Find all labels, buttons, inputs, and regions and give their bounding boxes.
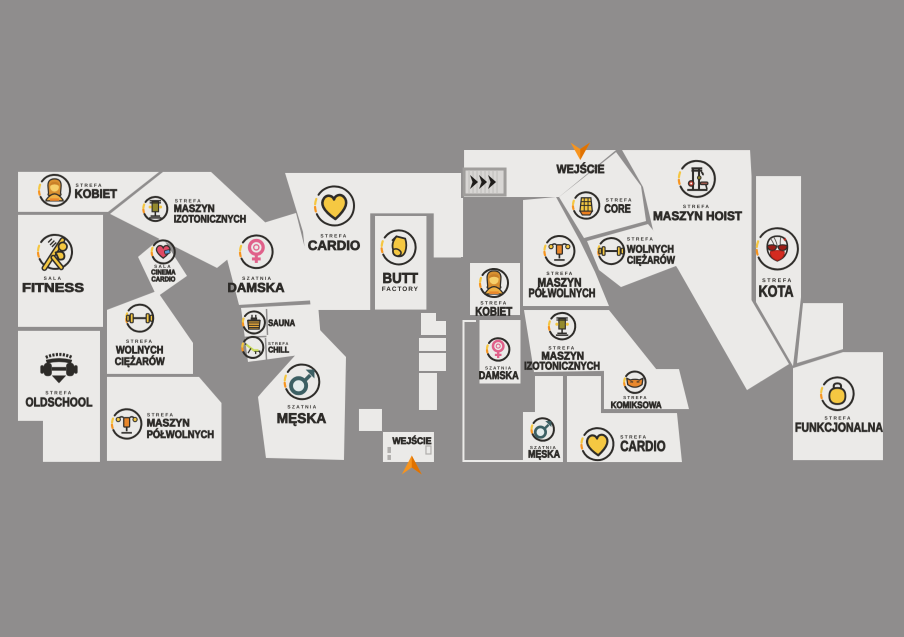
svg-text:FUNKCJONALNA: FUNKCJONALNA	[795, 420, 883, 435]
svg-text:KOTA: KOTA	[759, 284, 794, 301]
svg-text:CARDIO: CARDIO	[151, 276, 175, 283]
svg-text:DAMSKA: DAMSKA	[228, 280, 286, 295]
svg-text:PÓŁWOLNYCH: PÓŁWOLNYCH	[147, 428, 215, 441]
svg-text:WEJŚCIE: WEJŚCIE	[557, 162, 605, 176]
svg-text:MĘSKA: MĘSKA	[528, 449, 560, 461]
svg-text:CARDIO: CARDIO	[308, 238, 361, 253]
svg-text:FITNESS: FITNESS	[22, 281, 84, 295]
svg-text:CORE: CORE	[604, 202, 631, 216]
svg-text:FACTORY: FACTORY	[382, 286, 419, 293]
svg-text:OLDSCHOOL: OLDSCHOOL	[25, 394, 92, 409]
svg-text:PÓŁWOLNYCH: PÓŁWOLNYCH	[529, 286, 596, 300]
svg-text:IZOTONICZNYCH: IZOTONICZNYCH	[174, 213, 247, 225]
svg-text:CARDIO: CARDIO	[620, 439, 666, 455]
svg-text:DAMSKA: DAMSKA	[479, 370, 519, 382]
svg-text:CIĘŻARÓW: CIĘŻARÓW	[115, 355, 166, 368]
svg-text:KOMIKSOWA: KOMIKSOWA	[611, 400, 662, 410]
svg-text:WEJŚCIE: WEJŚCIE	[392, 435, 431, 447]
svg-text:SAUNA: SAUNA	[268, 318, 295, 328]
svg-text:MASZYN HOIST: MASZYN HOIST	[653, 209, 742, 223]
svg-text:CIĘŻARÓW: CIĘŻARÓW	[627, 254, 676, 267]
svg-text:IZOTONICZNYCH: IZOTONICZNYCH	[524, 361, 600, 373]
svg-text:MĘSKA: MĘSKA	[277, 410, 327, 426]
svg-text:KOBIET: KOBIET	[75, 187, 118, 201]
svg-text:CHILL: CHILL	[268, 344, 289, 354]
svg-text:CINEMA: CINEMA	[151, 269, 176, 276]
svg-text:SALA: SALA	[154, 264, 172, 269]
svg-text:KOBIET: KOBIET	[475, 305, 512, 319]
svg-text:BUTT: BUTT	[383, 271, 419, 287]
svg-text:MASZYN: MASZYN	[147, 417, 190, 429]
svg-text:STREFA: STREFA	[627, 237, 654, 243]
svg-text:WOLNYCH: WOLNYCH	[116, 344, 164, 356]
